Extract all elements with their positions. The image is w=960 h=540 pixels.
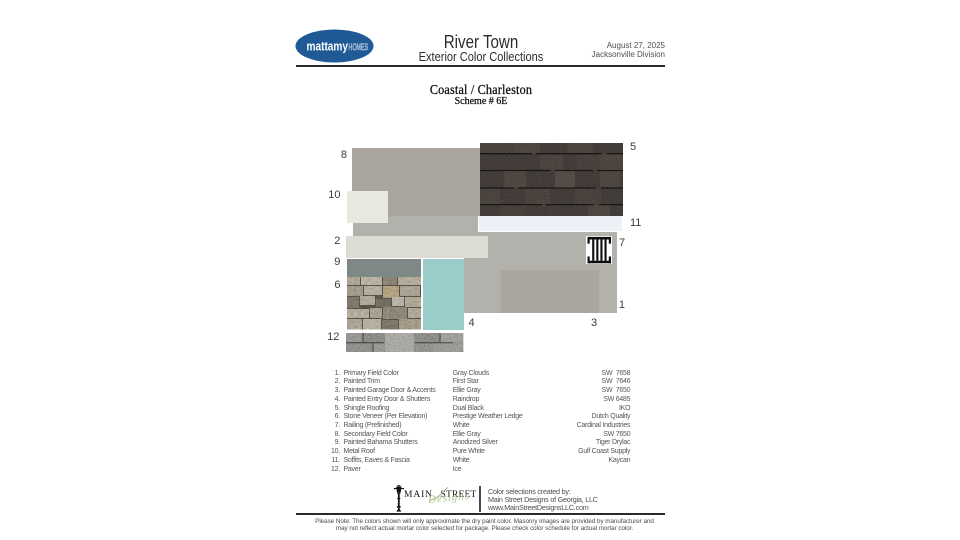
svg-text:mattamy: mattamy — [307, 40, 349, 54]
